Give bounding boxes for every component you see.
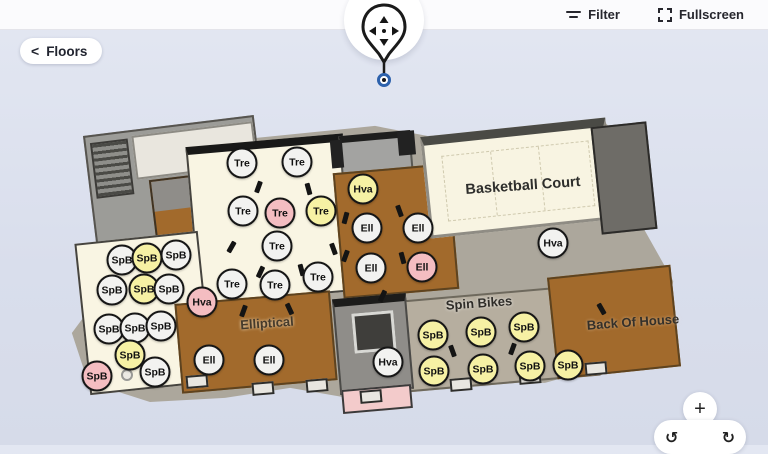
- equipment-marker-tre[interactable]: Tre: [228, 196, 259, 227]
- equipment-marker-tre[interactable]: Tre: [265, 198, 296, 229]
- rotate-controls: ↺ ↻: [654, 420, 746, 454]
- equipment-marker-tre[interactable]: Tre: [227, 148, 258, 179]
- marker-label: SpB: [423, 329, 444, 341]
- equipment-marker-tre[interactable]: Tre: [282, 147, 313, 178]
- marker-label: Ell: [263, 354, 276, 366]
- equipment-marker-spb[interactable]: SpB: [418, 320, 449, 351]
- marker-label: SpB: [102, 284, 123, 296]
- pan-pin-control[interactable]: [349, 1, 419, 93]
- equipment-marker-hva[interactable]: Hva: [348, 174, 379, 205]
- marker-label: SpB: [125, 322, 146, 334]
- marker-label: Tre: [234, 157, 250, 169]
- equipment-marker-hva[interactable]: Hva: [373, 347, 404, 378]
- equipment-marker-spb[interactable]: SpB: [466, 317, 497, 348]
- fullscreen-icon: [658, 8, 672, 22]
- floors-back-button[interactable]: < Floors: [20, 38, 102, 64]
- filter-icon: [566, 11, 581, 18]
- marker-label: Tre: [235, 205, 251, 217]
- equipment-marker-spb[interactable]: SpB: [146, 311, 177, 342]
- marker-label: Ell: [416, 261, 429, 273]
- equipment-marker-ell[interactable]: Ell: [407, 252, 438, 283]
- marker-label: SpB: [159, 283, 180, 295]
- marker-label: SpB: [514, 321, 535, 333]
- equipment-marker-hva[interactable]: Hva: [187, 287, 218, 318]
- equipment-marker-ell[interactable]: Ell: [194, 345, 225, 376]
- marker-label: SpB: [99, 323, 120, 335]
- marker-label: SpB: [120, 349, 141, 361]
- equipment-marker-tre[interactable]: Tre: [303, 262, 334, 293]
- marker-label: SpB: [473, 363, 494, 375]
- marker-label: Ell: [361, 222, 374, 234]
- marker-label: Tre: [272, 207, 288, 219]
- equipment-marker-ell[interactable]: Ell: [403, 213, 434, 244]
- marker-label: SpB: [166, 249, 187, 261]
- marker-label: SpB: [137, 252, 158, 264]
- marker-label: SpB: [151, 320, 172, 332]
- marker-label: SpB: [520, 360, 541, 372]
- rotate-cw-button[interactable]: ↻: [722, 428, 735, 447]
- rotate-ccw-button[interactable]: ↺: [665, 428, 678, 447]
- equipment-marker-hva[interactable]: Hva: [538, 228, 569, 259]
- equipment-marker-tre[interactable]: Tre: [217, 269, 248, 300]
- marker-label: Hva: [192, 296, 211, 308]
- chevron-left-icon: <: [31, 43, 39, 59]
- marker-label: SpB: [558, 359, 579, 371]
- marker-label: Tre: [267, 279, 283, 291]
- equipment-marker-tre[interactable]: Tre: [260, 270, 291, 301]
- marker-label: Ell: [412, 222, 425, 234]
- marker-label: Tre: [269, 240, 285, 252]
- equipment-marker-spb[interactable]: SpB: [161, 240, 192, 271]
- equipment-marker-ell[interactable]: Ell: [352, 213, 383, 244]
- equipment-marker-spb[interactable]: SpB: [154, 274, 185, 305]
- marker-label: Hva: [378, 356, 397, 368]
- marker-label: SpB: [471, 326, 492, 338]
- equipment-marker-spb[interactable]: SpB: [97, 275, 128, 306]
- equipment-marker-ell[interactable]: Ell: [254, 345, 285, 376]
- marker-label: Tre: [224, 278, 240, 290]
- equipment-marker-spb[interactable]: SpB: [82, 361, 113, 392]
- equipment-marker-spb[interactable]: SpB: [468, 354, 499, 385]
- equipment-marker-spb[interactable]: SpB: [132, 243, 163, 274]
- marker-label: Tre: [313, 205, 329, 217]
- marker-label: SpB: [87, 370, 108, 382]
- equipment-marker-tre[interactable]: Tre: [306, 196, 337, 227]
- equipment-marker-spb[interactable]: SpB: [509, 312, 540, 343]
- equipment-marker-spb[interactable]: SpB: [419, 356, 450, 387]
- marker-label: SpB: [424, 365, 445, 377]
- equipment-marker-spb[interactable]: SpB: [553, 350, 584, 381]
- fullscreen-label: Fullscreen: [679, 7, 744, 22]
- marker-label: Hva: [353, 183, 372, 195]
- filter-label: Filter: [588, 7, 620, 22]
- marker-label: SpB: [145, 366, 166, 378]
- filter-button[interactable]: Filter: [566, 7, 620, 22]
- equipment-marker-spb[interactable]: SpB: [140, 357, 171, 388]
- marker-label: Ell: [203, 354, 216, 366]
- marker-label: Tre: [289, 156, 305, 168]
- floors-label: Floors: [46, 44, 87, 59]
- equipment-marker-ell[interactable]: Ell: [356, 253, 387, 284]
- equipment-marker-tre[interactable]: Tre: [262, 231, 293, 262]
- marker-label: Hva: [543, 237, 562, 249]
- fullscreen-button[interactable]: Fullscreen: [658, 7, 744, 22]
- marker-label: Ell: [365, 262, 378, 274]
- marker-label: Tre: [310, 271, 326, 283]
- marker-label: SpB: [112, 254, 133, 266]
- equipment-marker-spb[interactable]: SpB: [515, 351, 546, 382]
- marker-label: SpB: [134, 283, 155, 295]
